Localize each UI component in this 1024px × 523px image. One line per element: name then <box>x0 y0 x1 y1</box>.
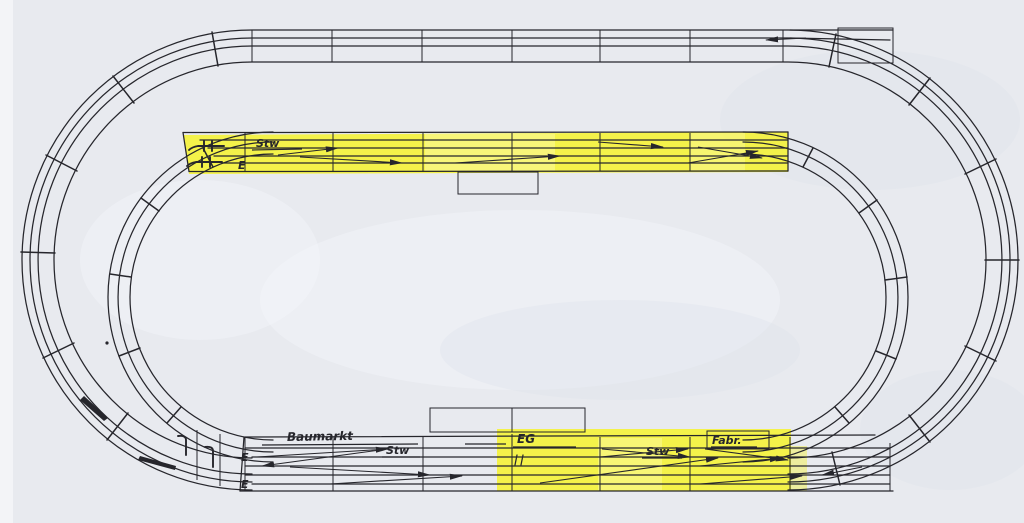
label-entry-track-upper: E <box>241 451 249 464</box>
label-bottom-signal-box-west: Stw <box>386 444 410 457</box>
label-top-signal-box: Stw <box>256 137 280 150</box>
label-top-entry-track: E <box>238 159 246 172</box>
label-entry-track-lower: E <box>241 478 249 491</box>
track-plan-svg: Stw E <box>0 0 1024 523</box>
label-bottom-signal-box-east: Stw <box>646 445 670 458</box>
label-baumarkt: Baumarkt <box>287 429 355 444</box>
label-station-building: EG <box>517 432 535 446</box>
label-factory: Fabr. <box>712 434 742 447</box>
scanned-track-plan: Stw E <box>0 0 1024 523</box>
